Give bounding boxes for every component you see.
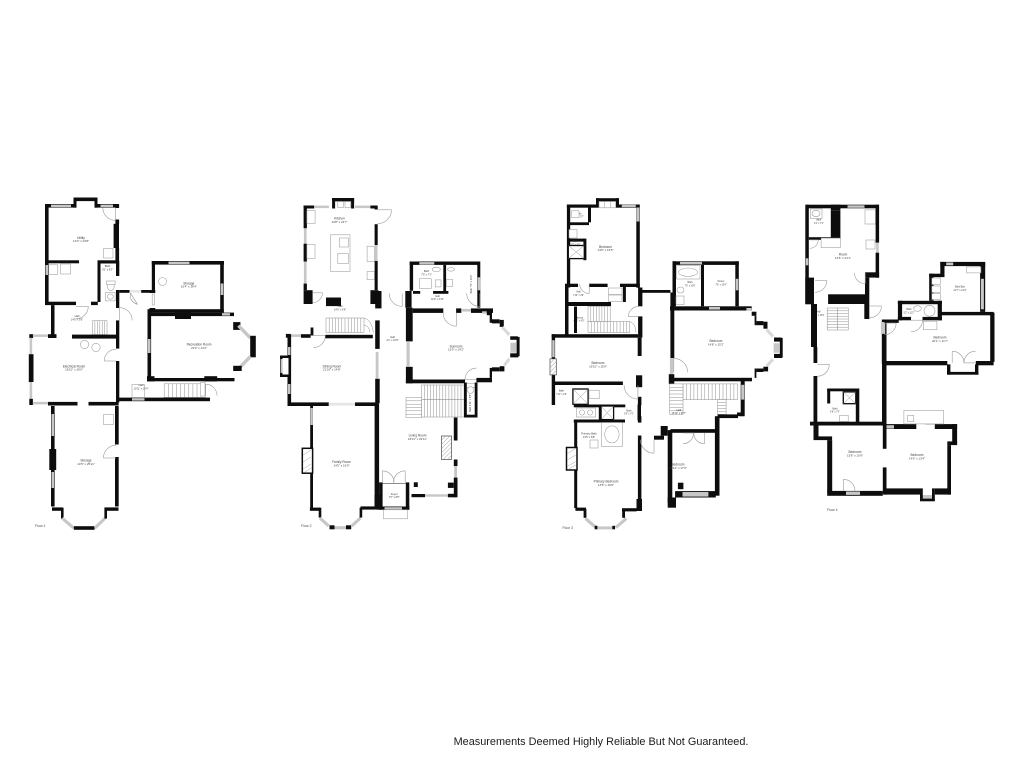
svg-text:Hall: Hall bbox=[139, 383, 144, 387]
svg-text:11'9" x 3'10": 11'9" x 3'10" bbox=[431, 298, 444, 301]
svg-text:14'8" x 15'2": 14'8" x 15'2" bbox=[708, 342, 724, 346]
svg-text:Measurements Deemed Highly Rel: Measurements Deemed Highly Reliable But … bbox=[454, 736, 749, 748]
svg-text:14'5" x 8'8": 14'5" x 8'8" bbox=[583, 436, 595, 439]
svg-text:7'0" x 4'0": 7'0" x 4'0" bbox=[571, 245, 581, 247]
svg-text:10'11" x 19'4": 10'11" x 19'4" bbox=[134, 388, 149, 391]
svg-text:7'0" x 8'5": 7'0" x 8'5" bbox=[389, 496, 400, 499]
svg-text:Bath 3'11" x 8'9": Bath 3'11" x 8'9" bbox=[469, 394, 472, 412]
svg-text:13'8" x 24'7": 13'8" x 24'7" bbox=[331, 220, 347, 224]
svg-text:Bath: Bath bbox=[424, 269, 430, 273]
svg-text:Room: Room bbox=[718, 280, 725, 283]
svg-text:Foyer: Foyer bbox=[391, 492, 398, 496]
svg-text:14'6" x 9'5": 14'6" x 9'5" bbox=[71, 319, 83, 322]
svg-text:7'11" x 4'9": 7'11" x 4'9" bbox=[556, 394, 567, 396]
svg-text:Hall: Hall bbox=[676, 408, 681, 412]
svg-text:14'6" x 16'5": 14'6" x 16'5" bbox=[597, 248, 613, 252]
svg-text:11'7" x 11'4": 11'7" x 11'4" bbox=[953, 289, 966, 292]
svg-text:Floor 3: Floor 3 bbox=[563, 526, 574, 530]
svg-text:14'6" x 13'4": 14'6" x 13'4" bbox=[909, 456, 925, 460]
svg-text:Bath: Bath bbox=[816, 218, 822, 221]
svg-text:14'5" x 16'6": 14'5" x 16'6" bbox=[598, 483, 614, 487]
svg-text:22'9" x 13'2": 22'9" x 13'2" bbox=[191, 346, 207, 350]
svg-text:5'1" x 9'3": 5'1" x 9'3" bbox=[102, 269, 113, 272]
svg-text:Bath: Bath bbox=[559, 389, 565, 392]
svg-text:Bath: Bath bbox=[627, 409, 633, 412]
svg-text:Floor 2: Floor 2 bbox=[301, 524, 312, 528]
svg-text:4'4" x 7'3": 4'4" x 7'3" bbox=[814, 223, 824, 225]
svg-text:14'6" x 24'1": 14'6" x 24'1" bbox=[835, 256, 851, 260]
svg-text:4'1" x 10'9": 4'1" x 10'9" bbox=[386, 339, 398, 342]
svg-text:6'6" x 7'5": 6'6" x 7'5" bbox=[830, 412, 840, 414]
svg-text:7'5" x 10'9": 7'5" x 10'9" bbox=[685, 285, 696, 287]
svg-text:Hall: Hall bbox=[75, 314, 80, 318]
svg-text:Bath 7'9" x 10'3": Bath 7'9" x 10'3" bbox=[469, 275, 473, 294]
svg-text:13'9" x 14'2": 13'9" x 14'2" bbox=[448, 348, 464, 352]
svg-text:Bed Bar: Bed Bar bbox=[955, 284, 965, 288]
svg-text:Bath: Bath bbox=[907, 308, 913, 311]
svg-text:Bath: Bath bbox=[688, 281, 694, 284]
svg-text:7'10" x 3'9": 7'10" x 3'9" bbox=[573, 295, 584, 297]
svg-text:Floor 4: Floor 4 bbox=[827, 508, 838, 512]
svg-text:Primary Bath: Primary Bath bbox=[581, 432, 597, 436]
svg-text:5'0" x 7'0": 5'0" x 7'0" bbox=[624, 414, 634, 416]
svg-text:Floor 1: Floor 1 bbox=[35, 524, 46, 528]
svg-text:Hall: Hall bbox=[816, 311, 821, 314]
svg-text:Hall: Hall bbox=[435, 294, 440, 298]
svg-text:14'0" x 23'8": 14'0" x 23'8" bbox=[73, 239, 89, 243]
svg-text:14'5" x 16'9": 14'5" x 16'9" bbox=[333, 463, 349, 467]
svg-text:15'10" x 15'9": 15'10" x 15'9" bbox=[589, 364, 607, 368]
svg-text:16'10" x 33'7": 16'10" x 33'7" bbox=[671, 412, 686, 415]
svg-text:16'10" x 16'0": 16'10" x 16'0" bbox=[65, 368, 83, 372]
svg-text:14'5" x 25'11": 14'5" x 25'11" bbox=[77, 462, 95, 466]
svg-text:16'10" x 17'6": 16'10" x 17'6" bbox=[669, 466, 687, 470]
svg-text:Hall: Hall bbox=[338, 304, 343, 308]
svg-text:7'6" x 10'4": 7'6" x 10'4" bbox=[715, 284, 727, 286]
svg-text:7'5" x 7'3": 7'5" x 7'3" bbox=[421, 273, 432, 276]
svg-text:Bath: Bath bbox=[833, 407, 839, 410]
svg-text:5'2" x 11'2": 5'2" x 11'2" bbox=[904, 312, 915, 314]
svg-text:15'6" x 10'9": 15'6" x 10'9" bbox=[847, 453, 863, 457]
svg-text:15'4" x 16'4": 15'4" x 16'4" bbox=[181, 285, 197, 289]
svg-text:14'6" x 6'6": 14'6" x 6'6" bbox=[334, 309, 346, 312]
svg-text:21'10" x 14'8": 21'10" x 14'8" bbox=[323, 368, 341, 372]
svg-text:20'1" x 11'7": 20'1" x 11'7" bbox=[932, 339, 948, 343]
svg-text:Bath: Bath bbox=[573, 240, 579, 243]
svg-text:Hall: Hall bbox=[576, 291, 581, 294]
svg-text:Hall: Hall bbox=[390, 335, 395, 339]
svg-text:18'11" x 29'11": 18'11" x 29'11" bbox=[408, 437, 427, 441]
svg-text:Bath: Bath bbox=[105, 264, 111, 268]
